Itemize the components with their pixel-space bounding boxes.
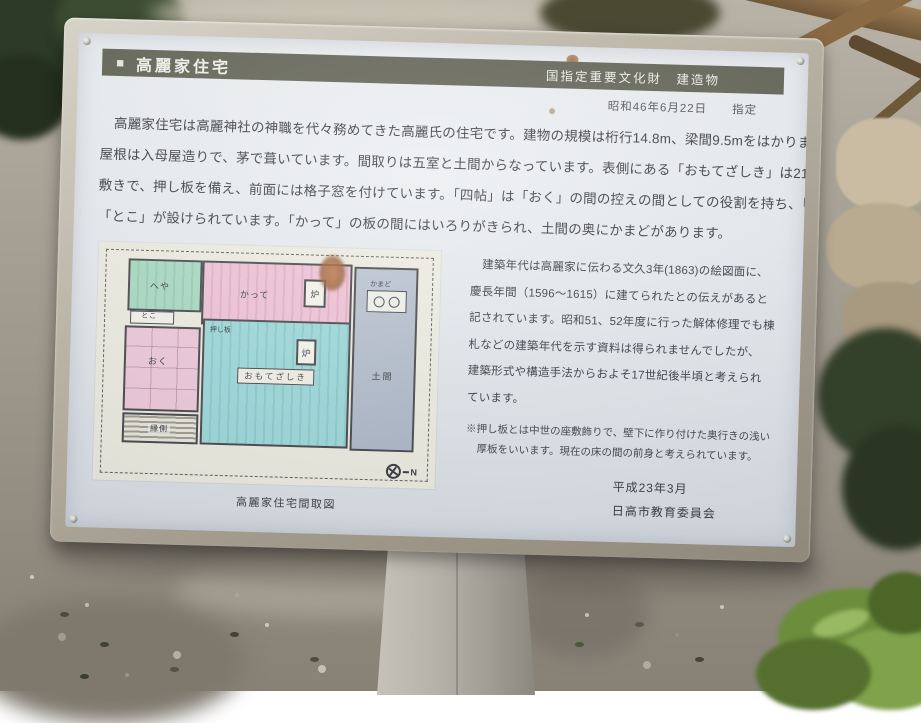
designation-text: 国指定重要文化財 建造物 [546,65,772,90]
leafy-plant-bottom-right-3 [756,638,871,710]
room-engawa-label: 縁側 [148,423,170,435]
lower-content: へや とこ かって 炉 かまど 土間 [90,241,779,527]
pole-shadow [518,566,648,658]
credit-organization: 日高市教育委員会 [612,499,773,527]
room-katte-label: かって [240,287,270,301]
oshiita-label: 押し板 [210,325,231,336]
sign-post [377,545,535,695]
room-engawa: 縁側 [122,412,199,444]
room-toko-label: とこ [141,312,157,322]
stone [826,203,921,291]
sign-post-seam [456,545,458,695]
dirt-patch-bottom-left [0,598,245,723]
screw-icon [83,37,91,45]
floorplan-caption: 高麗家住宅間取図 [120,490,452,515]
room-omotezashiki-label: おもてざしき [237,368,314,386]
wood-stick [847,33,921,91]
compass-needle-icon [402,471,408,473]
compass-circle-icon [385,464,400,479]
kamado-stove-symbol [366,290,407,313]
floorplan-figure: へや とこ かって 炉 かまど 土間 [90,241,459,518]
outdoor-scene: ■ 高麗家住宅 国指定重要文化財 建造物 昭和46年6月22日 指定 高麗家住宅… [0,0,921,691]
room-doma-label: 土間 [371,369,393,383]
credit-block: 平成23年3月 日高市教育委員会 [464,471,773,528]
compass-north-label: N [410,467,417,477]
room-omotezashiki: 押し板 炉 おもてざしき [200,318,351,448]
screw-icon [783,535,791,543]
stone [836,118,921,210]
square-bullet-icon: ■ [116,55,127,70]
room-doma: かまど 土間 [349,267,418,453]
information-sign: ■ 高麗家住宅 国指定重要文化財 建造物 昭和46年6月22日 指定 高麗家住宅… [50,17,824,562]
screw-icon [796,57,804,65]
gravel-pebbles [30,575,34,579]
room-oku: おく [123,325,201,412]
sign-face: ■ 高麗家住宅 国指定重要文化財 建造物 昭和46年6月22日 指定 高麗家住宅… [65,33,809,547]
hearth-symbol: 炉 [296,339,317,366]
history-column: 建築年代は高麗家に伝わる文久3年(1863)の絵図面に、 慶長年間（1596〜1… [452,252,779,528]
floorplan-drawing: へや とこ かって 炉 かまど 土間 [93,242,442,489]
compass-icon: N [385,464,417,480]
history-paragraph: 建築年代は高麗家に伝わる文久3年(1863)の絵図面に、 慶長年間（1596〜1… [467,252,779,420]
sign-title: ■ 高麗家住宅 [116,50,232,77]
leaf-debris [60,612,69,617]
room-heya: へや [127,258,202,312]
rust-speck [549,108,555,114]
screw-icon [69,515,77,523]
sign-title-text: 高麗家住宅 [136,51,232,78]
footnote: ※押し板とは中世の座敷飾りで、壁下に作り付けた奥行きの浅い 厚板をいいます。現在… [465,419,774,468]
room-toko: とこ [130,310,174,324]
room-oku-label: おく [148,354,168,368]
intro-paragraph: 高麗家住宅は高麗神社の神職を代々務めてきた高麗氏の住宅です。建物の規模は桁行14… [98,108,783,251]
room-heya-label: へや [150,279,170,293]
kamado-label: かまど [370,279,391,290]
